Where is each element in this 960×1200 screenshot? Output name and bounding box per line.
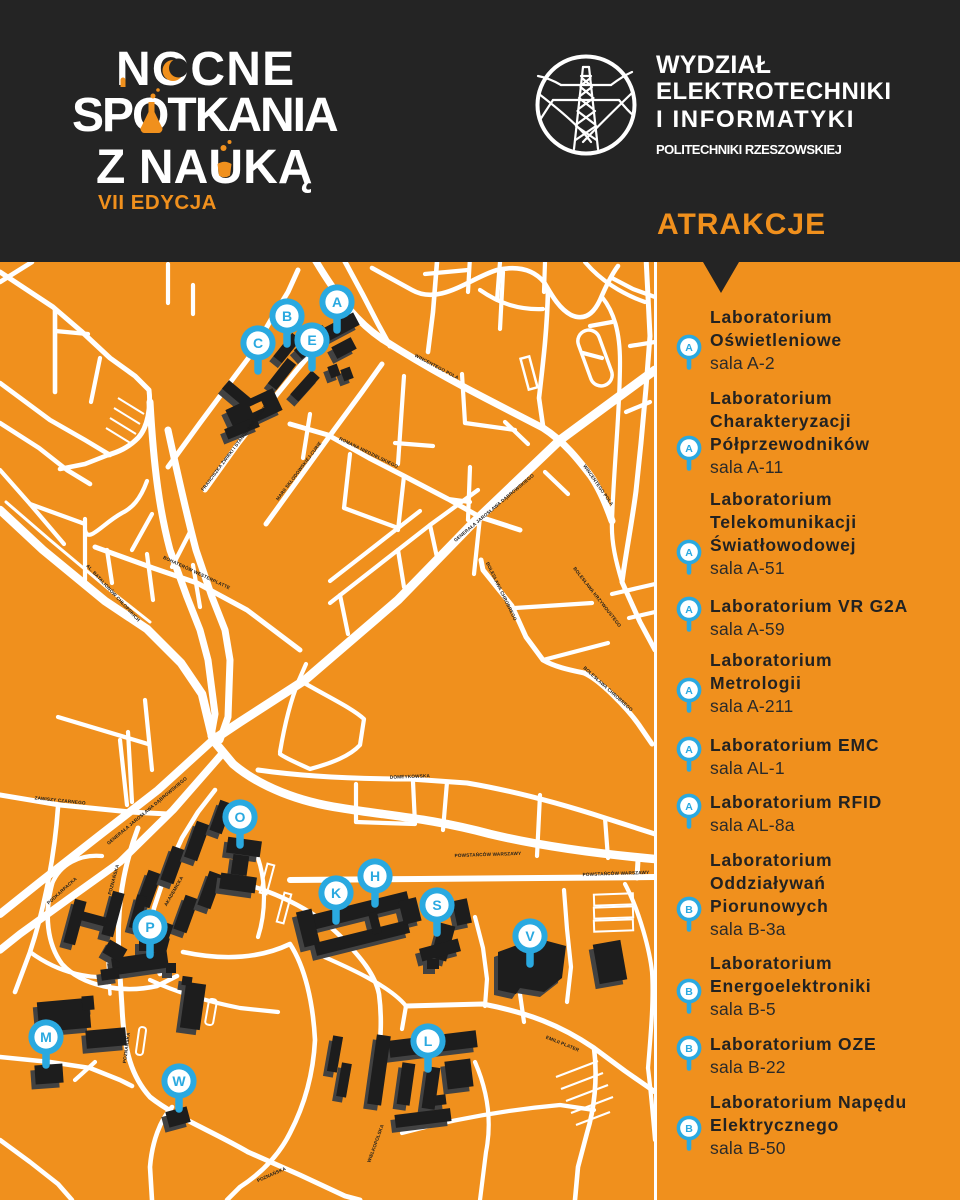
svg-text:L: L [424, 1033, 433, 1049]
svg-text:B: B [685, 904, 693, 916]
svg-text:A: A [685, 801, 693, 813]
svg-text:O: O [235, 809, 246, 825]
svg-text:B: B [685, 1123, 693, 1135]
svg-text:P: P [145, 919, 154, 935]
svg-text:B: B [685, 986, 693, 998]
svg-text:A: A [685, 443, 693, 455]
svg-text:S: S [432, 897, 441, 913]
svg-text:A: A [685, 342, 693, 354]
svg-text:B: B [685, 1043, 693, 1055]
svg-text:B: B [282, 308, 292, 324]
svg-text:A: A [685, 744, 693, 756]
svg-text:V: V [525, 928, 535, 944]
svg-text:A: A [332, 294, 342, 310]
svg-text:A: A [685, 685, 693, 697]
svg-text:K: K [331, 885, 341, 901]
svg-text:A: A [685, 547, 693, 559]
svg-text:A: A [685, 604, 693, 616]
svg-text:E: E [307, 332, 316, 348]
svg-text:W: W [172, 1073, 186, 1089]
svg-text:H: H [370, 868, 380, 884]
svg-text:M: M [40, 1029, 52, 1045]
svg-text:C: C [253, 335, 263, 351]
